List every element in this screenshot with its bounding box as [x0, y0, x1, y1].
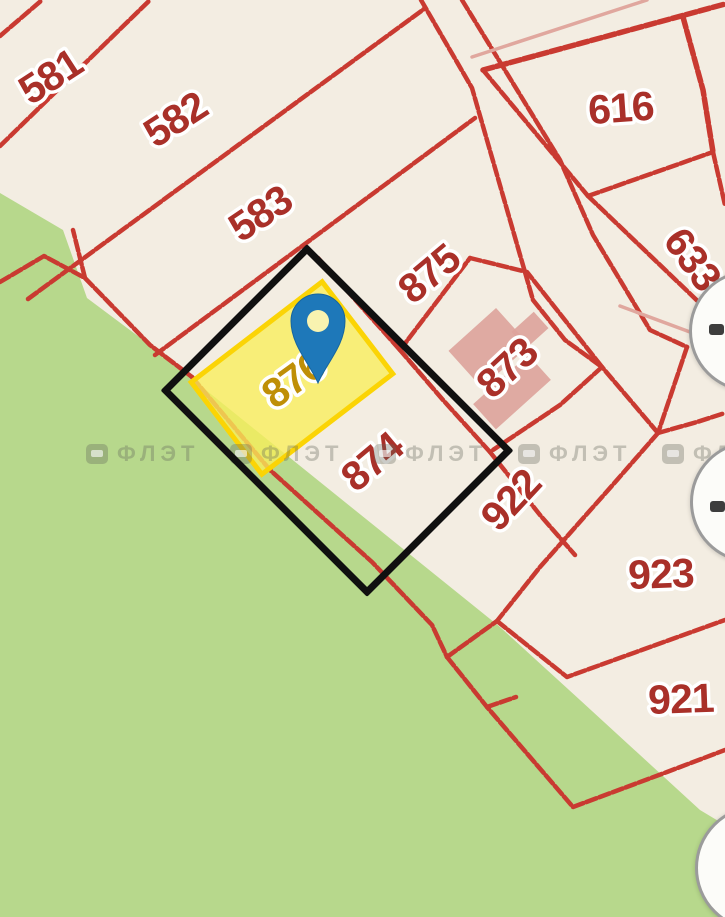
parcel-label-616: 616: [587, 83, 656, 133]
parcel-label-581: 581: [10, 39, 90, 113]
dash-icon: [709, 324, 724, 335]
parcel-label-921: 921: [647, 675, 714, 723]
location-pin-icon[interactable]: [288, 291, 348, 386]
dash-icon: [710, 501, 725, 512]
parcel-label-923: 923: [627, 550, 694, 598]
cadastral-map-canvas[interactable]: 581582583616633875873876874922923921 ФЛЭ…: [0, 0, 725, 917]
parcel-label-875: 875: [389, 235, 469, 312]
parcel-label-583: 583: [220, 176, 300, 251]
pin-hole: [307, 310, 329, 332]
parcel-label-582: 582: [135, 82, 215, 156]
